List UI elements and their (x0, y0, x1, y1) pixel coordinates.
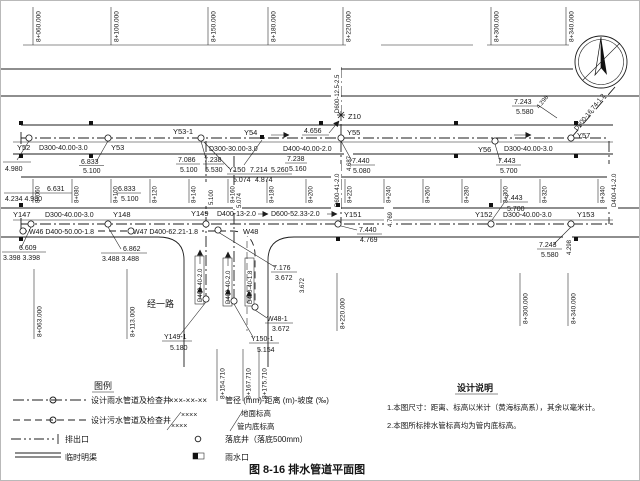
manhole-label-y54: Y54 (244, 128, 257, 137)
elevation: 3.398 3.398 (3, 255, 40, 262)
station-label: 8+080 (75, 185, 81, 203)
pipe-label: D300-40.00-3.0 (45, 212, 94, 219)
station-label: 8+300.000 (494, 11, 501, 42)
station-label: 8+063.000 (37, 306, 44, 337)
manhole-y148 (105, 221, 111, 227)
manhole-y52 (26, 135, 32, 141)
elevation: 5.530 (205, 167, 223, 174)
manhole-y57 (568, 135, 574, 141)
rain-inlet-icon (260, 135, 264, 139)
elevation: 5.080 (353, 168, 371, 175)
station-label: 8+167.710 (246, 368, 253, 399)
elevation: 5.580 (516, 109, 534, 116)
manhole-label-y53: Y53 (111, 143, 124, 152)
rain-inlet-icon (19, 203, 23, 207)
elevation: 3.672 (275, 275, 293, 282)
rain-inlet-icon (574, 154, 578, 158)
station-label: 8+220.000 (346, 11, 353, 42)
drawing-page: 8+060.0008+100.0008+150.0008+180.0008+22… (0, 0, 640, 481)
station-label: 8+280 (465, 185, 471, 203)
legend-sewage-label: 设计污水管道及检查井 (91, 415, 171, 425)
elevation: 5.700 (500, 168, 518, 175)
elevation: 5.160 (289, 166, 307, 173)
pipe-label: D300-30.00-3.0 (209, 146, 258, 153)
elevation: 5.100 (121, 196, 139, 203)
elevation: 5.154 (257, 347, 275, 354)
leader-lines (17, 105, 571, 337)
elevation: 6.862 (123, 246, 141, 253)
pipe-label: D400-40.00-2.0 (283, 146, 332, 153)
manhole-label-w48: W48 (243, 227, 258, 236)
elevation-vertical: 4.298 (567, 239, 573, 255)
elevation: 6.631 (47, 186, 65, 193)
elevation-vertical: 5.100 (209, 189, 215, 205)
station-label: 8+100.000 (114, 11, 121, 42)
road-lines (1, 45, 640, 367)
manhole-label-y148: Y148 (113, 210, 131, 219)
station-label: 8+180 (270, 185, 276, 203)
manhole-w46 (20, 228, 26, 234)
rain-inlet-icon (19, 154, 23, 158)
rain-inlet-icon (454, 154, 458, 158)
legend-elev-top: ×××× (181, 412, 197, 419)
rain-inlet-icon (489, 203, 493, 207)
pipe-label-w47: W47 D400-62.21-1.8 (133, 229, 198, 236)
station-label: 8+154.710 (220, 368, 227, 399)
elevation: 7.243 (539, 242, 557, 249)
elevation: 7.176 (273, 265, 291, 272)
station-label: 8+175.710 (262, 368, 269, 399)
manhole-y53-1 (198, 135, 204, 141)
pipe-label-boxed: D400-40-1.8 (248, 270, 254, 304)
legend-elev-bot: ×××× (171, 423, 187, 430)
manhole-y56 (492, 138, 498, 144)
legend-code: ×××-××-×× (169, 396, 207, 405)
legend-code-desc: 管径 (mm)-距离 (m)-坡度 (‰) (225, 395, 329, 405)
manhole-label-y57: Y57 (577, 131, 590, 140)
manhole-y152 (488, 221, 494, 227)
manhole-label-y150-1: Y150-1 (251, 336, 274, 343)
road-name-label: 经一路 (147, 298, 174, 309)
elevation: 4.769 (360, 237, 378, 244)
manhole-label-y153: Y153 (577, 210, 595, 219)
rain-inlet-icon (19, 237, 23, 241)
elevation: 5.580 (541, 252, 559, 259)
elevation: 7.440 (352, 158, 370, 165)
legend-channel-label: 临时明渠 (65, 452, 97, 462)
pipe-label: D300-40.00-3.0 (39, 145, 88, 152)
manhole-label-y149-1: Y149-1 (164, 334, 187, 341)
legend-inlet-label: 雨水口 (225, 452, 249, 462)
manhole-label-y53-1: Y53-1 (173, 127, 193, 136)
manhole-y153 (568, 221, 574, 227)
elevation-vertical: 3.672 (300, 277, 306, 293)
pipe-label-boxed: D400-40-2.0 (198, 268, 204, 302)
elevation: 7.238 (204, 157, 222, 164)
pipe-lines (21, 67, 615, 331)
elevation: 7.443 (498, 158, 516, 165)
manhole-label-y151: Y151 (344, 210, 362, 219)
station-label: 8+180.000 (271, 11, 278, 42)
elevation: 7.443 (505, 195, 523, 202)
note-1: 1.本图尺寸：距离、标高以米计（黄海标高系），其余以毫米计。 (387, 402, 600, 412)
manhole-y55 (338, 135, 344, 141)
manhole-label-y147: Y147 (13, 210, 31, 219)
legend-title: 图例 (94, 380, 112, 391)
rain-inlet-icon (454, 121, 458, 125)
station-label: 8+300.000 (523, 293, 530, 324)
station-label: 8+200 (309, 185, 315, 203)
elevation-vertical: 4.769 (388, 211, 394, 227)
elevation-diagonal: 4.298 (536, 94, 551, 110)
station-label: 8+113.000 (130, 306, 137, 337)
rain-inlet-icon (89, 121, 93, 125)
station-label: 8+120 (153, 185, 159, 203)
plan-drawing: 8+060.0008+100.0008+150.0008+180.0008+22… (1, 1, 640, 481)
station-label: 8+320 (543, 185, 549, 203)
north-arrow-icon (575, 36, 627, 88)
inlet-symbol-fill (193, 453, 198, 459)
manhole-label-y149: Y149 (191, 209, 209, 218)
pipe-label-w46: W46 D400-50.00-1.8 (29, 229, 94, 236)
station-label: 8+340.000 (569, 11, 576, 42)
elevation: 7.243 (514, 99, 532, 106)
manhole-y147 (28, 221, 34, 227)
manhole-label-y150: Y150 (228, 165, 246, 174)
elevation: 7.238 (287, 156, 305, 163)
elevation: 4.874 (255, 177, 273, 184)
station-label: 8+140 (192, 185, 198, 203)
rain-inlet-icon (19, 121, 23, 125)
station-label: 8+150.000 (211, 11, 218, 42)
manhole-y53 (105, 135, 111, 141)
rain-inlet-icon (574, 237, 578, 241)
legend-rain-label: 设计雨水管道及检查井 (91, 395, 171, 405)
notes-title: 设计说明 (457, 382, 493, 393)
note-2: 2.本图所标排水管标高均为管内底标高。 (387, 420, 521, 430)
pipe-label-boxed: D400-40-2.0 (226, 270, 232, 304)
manhole-label-y55: Y55 (347, 128, 360, 137)
elevation: 5.260 (271, 167, 289, 174)
pipe-label: D300-40.00-3.0 (503, 212, 552, 219)
drawing-caption: 图 8-16 排水管道平面图 (249, 462, 365, 476)
legend-outfall-label: 排出口 (65, 434, 89, 444)
pipe-label: D600-52.33-2.0 (271, 211, 320, 218)
manhole-w48 (215, 227, 221, 233)
rain-inlet-icon (89, 154, 93, 158)
pipe-label: D300-40.00-3.0 (504, 146, 553, 153)
station-label: 8+220.000 (340, 298, 347, 329)
elevation: 3.488 3.488 (102, 256, 139, 263)
drop-well-symbol-icon (195, 436, 201, 442)
design-notes: 设计说明 1.本图尺寸：距离、标高以米计（黄海标高系），其余以毫米计。 2.本图… (387, 382, 600, 430)
legend-ground-label: 地面标高 (241, 408, 271, 418)
station-label: 8+340.000 (571, 293, 578, 324)
elevation: 5.100 (180, 167, 198, 174)
station-label: 8+240 (387, 185, 393, 203)
elevation: 6.609 (19, 245, 37, 252)
rain-inlet-icon (336, 237, 340, 241)
elevation: 5.100 (83, 168, 101, 175)
elevation: 7.214 (250, 167, 268, 174)
station-label: 8+220 (348, 185, 354, 203)
elevation: 7.440 (359, 227, 377, 234)
elevation: 6.833 (81, 159, 99, 166)
legend: 图例 设计雨水管道及检查井 ×××-××-×× 管径 (mm)-距离 (m)-坡… (11, 380, 329, 462)
elevation: 5.180 (170, 345, 188, 352)
manhole-label-y56: Y56 (478, 145, 491, 154)
pipe-label-diagonal: D600-16.74-1.2 (573, 92, 607, 132)
elevation: 7.086 (178, 157, 196, 164)
station-label: 8+160 (231, 185, 237, 203)
rain-inlet-icon (319, 121, 323, 125)
pipe-label-vertical: D600-41-2.0 (335, 173, 341, 207)
legend-invert-label: 管内底标高 (237, 421, 275, 431)
manhole-label-y52: Y52 (17, 143, 30, 152)
flow-arrow-icon (329, 121, 339, 133)
elevation: 3.672 (272, 326, 290, 333)
legend-dropwell-label: 落底井（落底500mm） (225, 434, 308, 444)
station-label: 8+340 (601, 185, 607, 203)
outfall-label-z10: Z10 (348, 112, 361, 121)
station-label: 8+260 (426, 185, 432, 203)
station-label: 8+060.000 (36, 11, 43, 42)
manhole-y151 (335, 221, 341, 227)
pipe-label: D400-13-2.0 (217, 211, 256, 218)
elevation-bars (2, 106, 562, 343)
elevation: 4.234 4.980 (5, 196, 42, 203)
stations-top: 8+060.0008+100.0008+150.0008+180.0008+22… (33, 7, 576, 45)
manhole-y149 (203, 221, 209, 227)
elevation: 6.833 (118, 186, 136, 193)
elevation: 4.656 (304, 128, 322, 135)
elevation: 5.700 (507, 206, 525, 213)
elevation-vertical: 4.687 (347, 155, 353, 171)
elevation: 5.074 (233, 177, 251, 184)
manhole-label-w48-1: W48-1 (267, 316, 288, 323)
pipe-label-vertical: D600-12.5-2.5 (335, 74, 341, 113)
elevation-vertical: 5.074 (237, 192, 243, 208)
pipe-label-vertical: D400-41-2.0 (612, 173, 618, 207)
manhole-label-y152: Y152 (475, 210, 493, 219)
elevation: 4.980 (5, 166, 23, 173)
